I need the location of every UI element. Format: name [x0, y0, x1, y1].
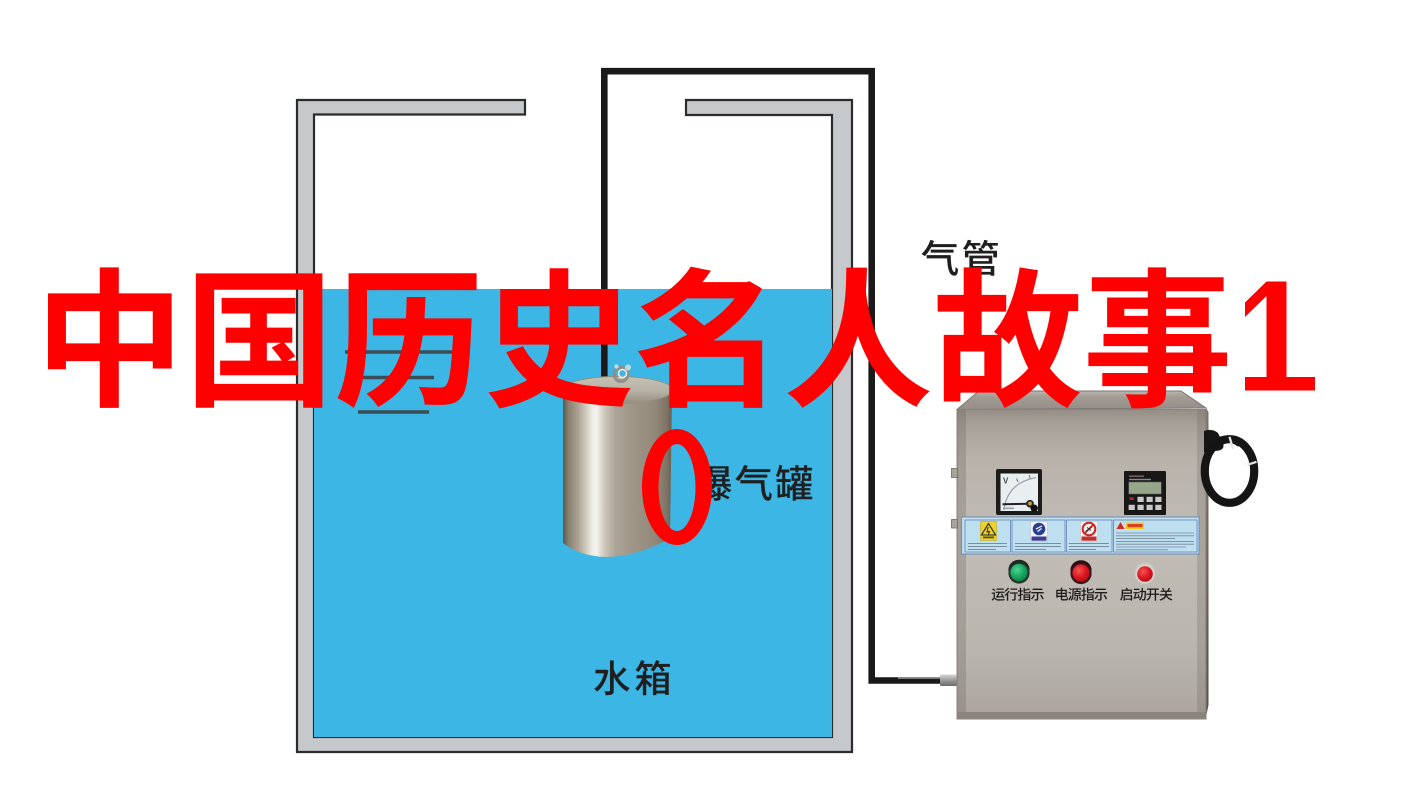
- svg-text:V: V: [1003, 477, 1009, 486]
